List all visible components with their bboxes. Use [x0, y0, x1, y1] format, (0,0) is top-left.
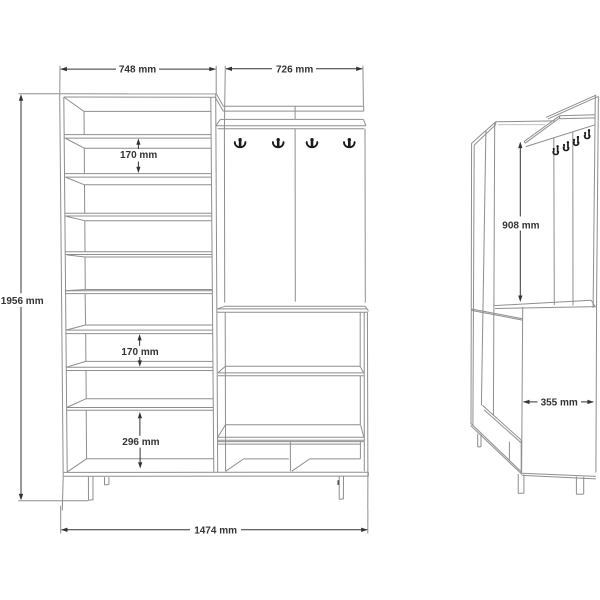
svg-text:296 mm: 296 mm	[122, 437, 159, 448]
svg-text:355 mm: 355 mm	[541, 398, 578, 409]
svg-text:170 mm: 170 mm	[121, 347, 158, 358]
svg-text:170 mm: 170 mm	[120, 150, 157, 161]
svg-text:748 mm: 748 mm	[119, 65, 156, 76]
svg-text:1474 mm: 1474 mm	[194, 526, 237, 537]
svg-text:1956 mm: 1956 mm	[1, 296, 44, 307]
svg-text:908 mm: 908 mm	[502, 220, 539, 231]
svg-text:726 mm: 726 mm	[276, 65, 313, 76]
